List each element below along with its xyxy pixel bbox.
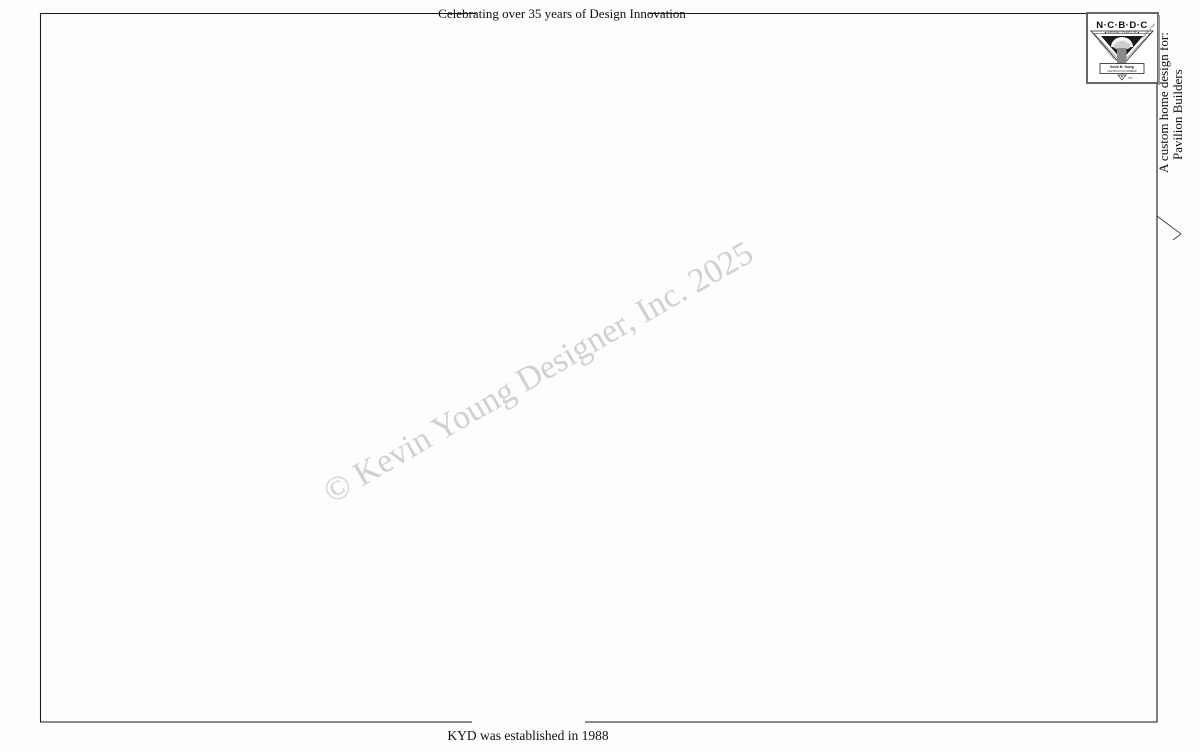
svg-text:Pavilion Builders: Pavilion Builders	[1170, 69, 1185, 160]
svg-text:KYD was established in 1988: KYD was established in 1988	[447, 728, 608, 743]
svg-text:CERTIFICATION NUMBER: CERTIFICATION NUMBER	[1107, 70, 1136, 73]
svg-text:◆ NATIONAL COUNCIL OF ◆: ◆ NATIONAL COUNCIL OF ◆	[1105, 31, 1141, 35]
svg-text:Celebrating over 35 years of D: Celebrating over 35 years of Design Inno…	[438, 6, 686, 21]
svg-text:TM: TM	[1128, 76, 1133, 80]
svg-text:N·C·B·D·C: N·C·B·D·C	[1096, 20, 1147, 31]
svg-text:Kevin M. Young: Kevin M. Young	[1110, 65, 1134, 69]
